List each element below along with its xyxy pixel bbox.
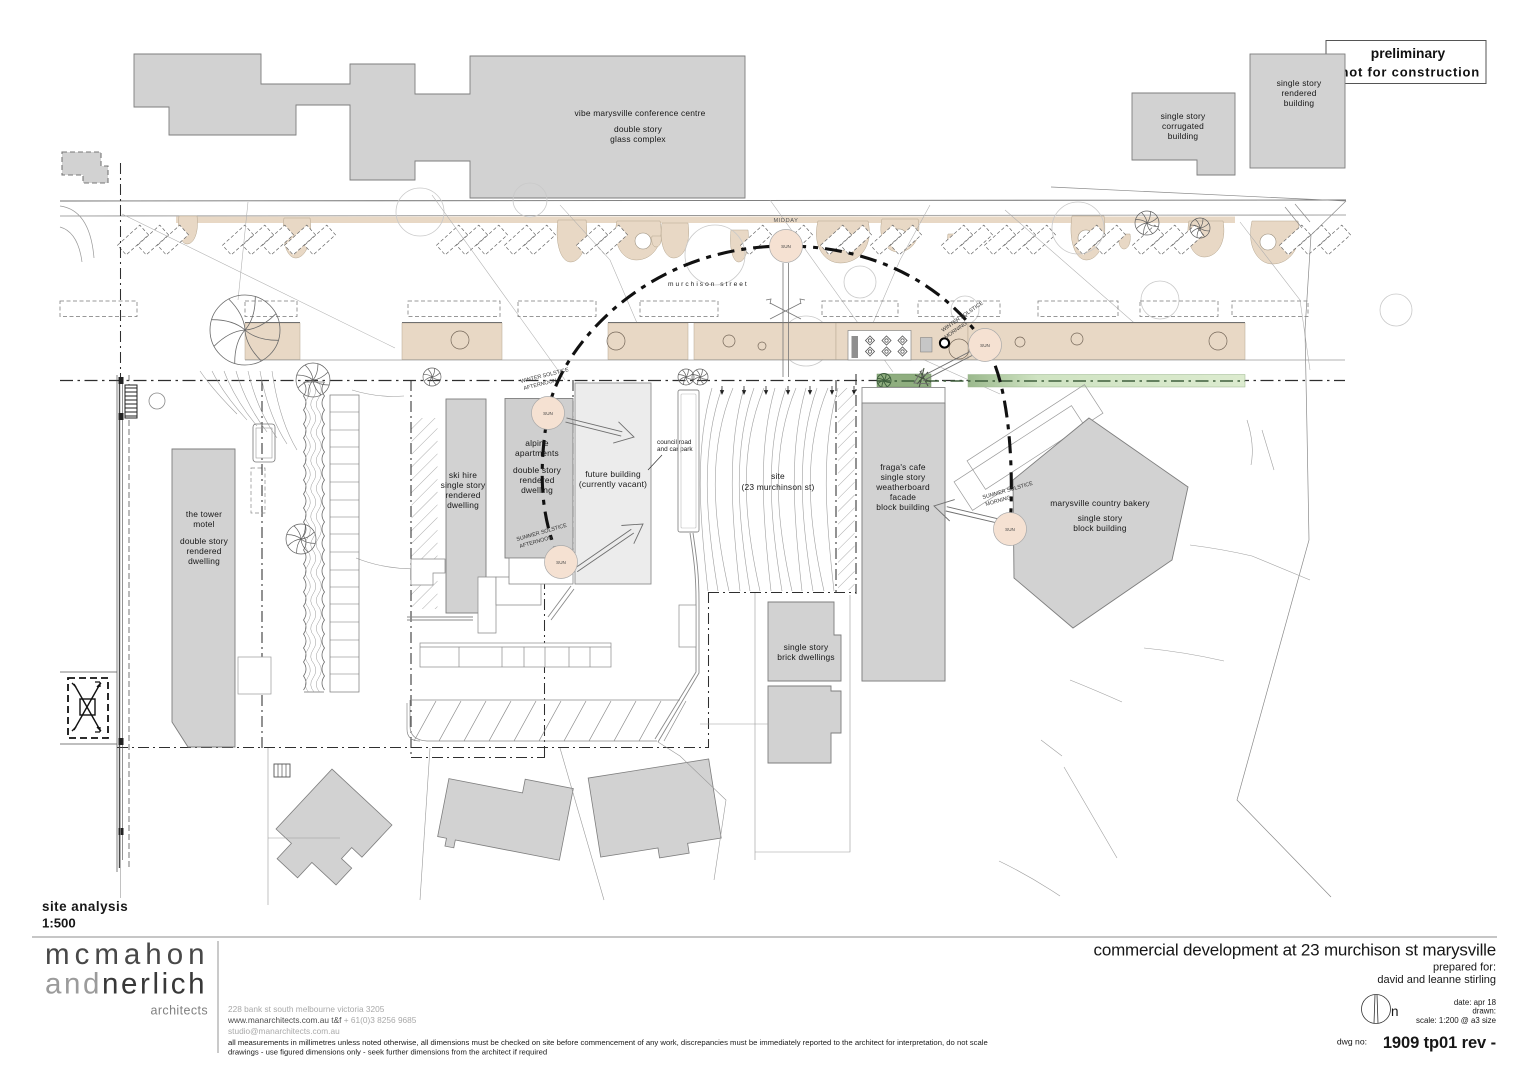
svg-text:dwelling: dwelling <box>188 556 220 566</box>
svg-text:glass complex: glass complex <box>610 134 666 144</box>
svg-text:double story: double story <box>614 124 663 134</box>
svg-text:not for construction: not for construction <box>1341 65 1481 80</box>
svg-text:1:500: 1:500 <box>42 916 76 931</box>
svg-text:david and leanne stirling: david and leanne stirling <box>1377 974 1496 986</box>
svg-text:1909 tp01 rev -: 1909 tp01 rev - <box>1383 1034 1496 1052</box>
svg-text:vibe marysville conference cen: vibe marysville conference centre <box>575 108 706 118</box>
svg-text:motel: motel <box>193 519 214 529</box>
svg-text:single story: single story <box>441 480 486 490</box>
svg-text:drawings - use figured dimensi: drawings - use figured dimensions only -… <box>228 1048 547 1057</box>
svg-text:and car park: and car park <box>657 446 693 453</box>
svg-text:mcmahon: mcmahon <box>45 938 210 971</box>
svg-text:site: site <box>771 471 785 481</box>
svg-text:single story: single story <box>1161 111 1206 121</box>
svg-text:SUN: SUN <box>781 244 791 249</box>
svg-text:all measurements in millimetre: all measurements in millimetres unless n… <box>228 1038 988 1047</box>
svg-text:SUN: SUN <box>1005 527 1015 532</box>
svg-text:single story: single story <box>784 642 829 652</box>
svg-text:rendered: rendered <box>1281 88 1316 98</box>
svg-text:(currently vacant): (currently vacant) <box>579 479 647 489</box>
svg-text:building: building <box>1168 131 1199 141</box>
svg-text:dwelling: dwelling <box>521 485 553 495</box>
svg-text:rendered: rendered <box>519 475 554 485</box>
svg-text:scale: 1:200 @ a3 size: scale: 1:200 @ a3 size <box>1416 1016 1497 1025</box>
svg-text:dwg no:: dwg no: <box>1337 1037 1367 1047</box>
svg-text:future building: future building <box>585 469 641 479</box>
svg-text:building: building <box>1284 98 1315 108</box>
svg-text:single story: single story <box>1078 513 1123 523</box>
svg-text:SUN: SUN <box>543 411 553 416</box>
svg-text:dwelling: dwelling <box>447 500 479 510</box>
svg-text:site analysis: site analysis <box>42 899 128 914</box>
svg-text:rendered: rendered <box>186 546 221 556</box>
svg-text:weatherboard: weatherboard <box>875 482 930 492</box>
svg-text:council road: council road <box>657 439 692 446</box>
svg-text:228 bank st south melbourne vi: 228 bank st south melbourne victoria 320… <box>228 1004 385 1014</box>
svg-text:corrugated: corrugated <box>1162 121 1204 131</box>
svg-text:brick dwellings: brick dwellings <box>777 652 834 662</box>
svg-text:andnerlich: andnerlich <box>45 968 207 1001</box>
svg-text:MIDDAY: MIDDAY <box>774 218 799 224</box>
svg-text:apartments: apartments <box>515 448 559 458</box>
svg-text:www.manarchitects.com.au t&f: www.manarchitects.com.au t&f + 61(0)3 82… <box>227 1015 417 1025</box>
svg-text:the tower: the tower <box>186 509 222 519</box>
svg-text:block building: block building <box>876 502 930 512</box>
svg-text:single story: single story <box>881 472 926 482</box>
svg-text:architects: architects <box>151 1004 209 1018</box>
svg-text:fraga's cafe: fraga's cafe <box>880 462 926 472</box>
svg-text:block building: block building <box>1073 523 1127 533</box>
svg-text:facade: facade <box>890 492 916 502</box>
svg-text:date: apr 18: date: apr 18 <box>1454 998 1497 1007</box>
svg-text:ski hire: ski hire <box>449 470 477 480</box>
svg-text:single story: single story <box>1277 78 1322 88</box>
svg-text:murchison street: murchison street <box>668 281 749 288</box>
svg-text:drawn:: drawn: <box>1472 1007 1496 1016</box>
svg-text:commercial development at 23 m: commercial development at 23 murchison s… <box>1094 941 1496 960</box>
svg-text:SUN: SUN <box>980 343 990 348</box>
svg-text:n: n <box>1391 1004 1399 1019</box>
svg-text:prepared for:: prepared for: <box>1433 962 1496 974</box>
svg-text:studio@manarchitects.com.au: studio@manarchitects.com.au <box>228 1026 340 1036</box>
svg-text:(23 murchinson st): (23 murchinson st) <box>742 482 815 492</box>
svg-text:SUN: SUN <box>556 560 566 565</box>
svg-text:double story: double story <box>180 536 229 546</box>
svg-text:rendered: rendered <box>445 490 480 500</box>
svg-text:double story: double story <box>513 465 562 475</box>
svg-text:marysville country bakery: marysville country bakery <box>1050 498 1150 508</box>
svg-text:preliminary: preliminary <box>1371 46 1446 61</box>
